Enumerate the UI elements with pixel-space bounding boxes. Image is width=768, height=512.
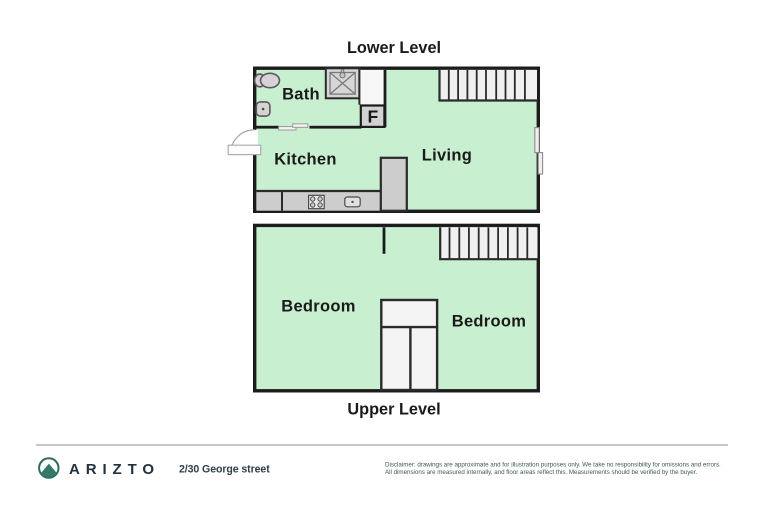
- svg-text:2/30 George street: 2/30 George street: [179, 463, 270, 475]
- svg-text:Living: Living: [422, 146, 472, 164]
- svg-text:Disclaimer: drawings are appro: Disclaimer: drawings are approximate and…: [385, 461, 721, 468]
- svg-text:ARIZTO: ARIZTO: [69, 461, 160, 478]
- svg-text:All dimensions are measured in: All dimensions are measured internally, …: [385, 469, 697, 476]
- svg-text:Bedroom: Bedroom: [452, 313, 527, 331]
- svg-text:Upper Level: Upper Level: [347, 401, 440, 419]
- svg-text:Lower Level: Lower Level: [347, 39, 441, 57]
- svg-text:F: F: [367, 107, 378, 127]
- svg-text:Bath: Bath: [282, 86, 320, 104]
- svg-text:Kitchen: Kitchen: [274, 151, 337, 169]
- svg-text:Bedroom: Bedroom: [281, 298, 356, 316]
